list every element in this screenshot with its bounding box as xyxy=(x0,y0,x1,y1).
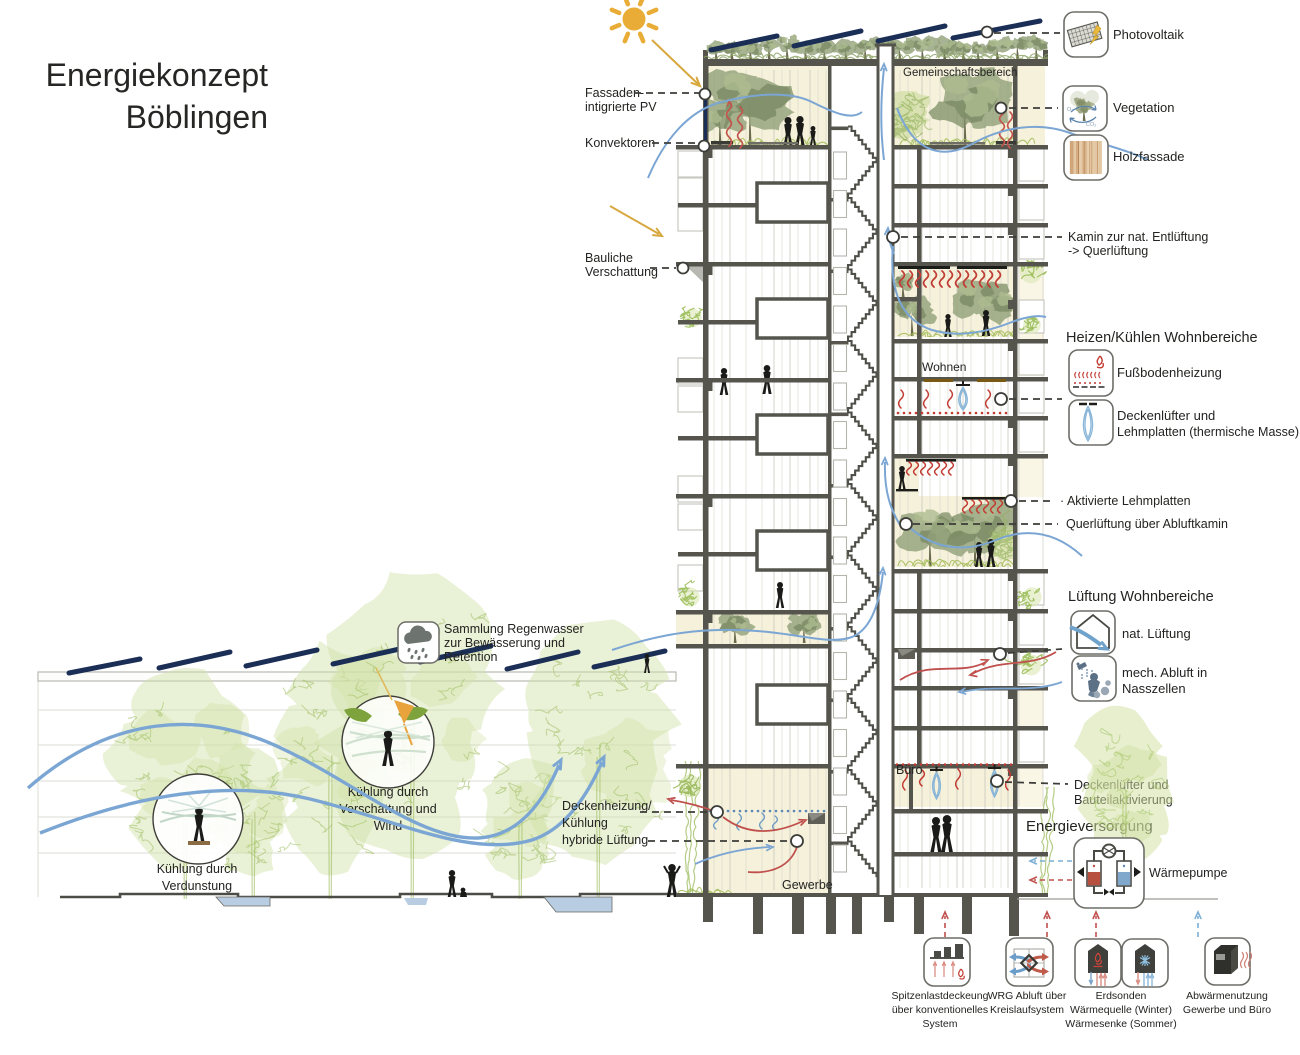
svg-text:Büro: Büro xyxy=(896,763,922,777)
svg-text:Retention: Retention xyxy=(444,650,498,664)
svg-text:Kamin zur nat. Entlüftung: Kamin zur nat. Entlüftung xyxy=(1068,230,1208,244)
svg-text:Kühlung: Kühlung xyxy=(562,816,608,830)
svg-text:hybride Lüftung: hybride Lüftung xyxy=(562,833,648,847)
svg-text:Sammlung Regenwasser: Sammlung Regenwasser xyxy=(444,622,584,636)
svg-text:Kühlung durch: Kühlung durch xyxy=(157,862,238,876)
svg-text:nat. Lüftung: nat. Lüftung xyxy=(1122,626,1191,641)
svg-text:zur Bewässerung und: zur Bewässerung und xyxy=(444,636,565,650)
svg-text:Spitzenlastdeckeung: Spitzenlastdeckeung xyxy=(892,990,989,1002)
svg-text:intigrierte PV: intigrierte PV xyxy=(585,100,657,114)
svg-text:Nasszellen: Nasszellen xyxy=(1122,681,1186,696)
svg-text:Holzfassade: Holzfassade xyxy=(1113,149,1185,164)
svg-text:Verdunstung: Verdunstung xyxy=(162,879,232,893)
svg-text:Böblingen: Böblingen xyxy=(126,99,268,135)
svg-text:Erdsonden: Erdsonden xyxy=(1096,990,1147,1002)
svg-text:Querlüftung über Abluftkamin: Querlüftung über Abluftkamin xyxy=(1066,517,1228,531)
svg-text:Photovoltaik: Photovoltaik xyxy=(1113,27,1184,42)
svg-text:Gewerbe und Büro: Gewerbe und Büro xyxy=(1183,1004,1271,1016)
svg-text:Gewerbe: Gewerbe xyxy=(782,878,833,892)
svg-text:Verschattung: Verschattung xyxy=(585,265,658,279)
svg-text:Wohnen: Wohnen xyxy=(922,360,966,374)
svg-text:Lehmplatten (thermische Masse): Lehmplatten (thermische Masse) xyxy=(1117,425,1299,439)
svg-text:Deckenheizung/: Deckenheizung/ xyxy=(562,799,652,813)
svg-text:Konvektoren: Konvektoren xyxy=(585,136,655,150)
svg-text:Wärmesenke (Sommer): Wärmesenke (Sommer) xyxy=(1065,1018,1176,1030)
svg-text:System: System xyxy=(922,1018,957,1030)
svg-text:O₂: O₂ xyxy=(1067,107,1073,113)
svg-text:über konventionelles: über konventionelles xyxy=(892,1004,988,1016)
svg-text:Deckenlüfter und: Deckenlüfter und xyxy=(1117,408,1215,423)
svg-text:Energiekonzept: Energiekonzept xyxy=(46,57,268,93)
svg-text:Wärmepumpe: Wärmepumpe xyxy=(1149,866,1228,880)
svg-text:Lüftung Wohnbereiche: Lüftung Wohnbereiche xyxy=(1068,589,1214,605)
svg-text:CO₂: CO₂ xyxy=(1086,122,1096,128)
svg-text:· Aktivierte Lehmplatten: · Aktivierte Lehmplatten xyxy=(1060,494,1191,508)
svg-text:Fußbodenheizung: Fußbodenheizung xyxy=(1117,365,1222,380)
svg-text:-> Querlüftung: -> Querlüftung xyxy=(1068,244,1148,258)
svg-text:mech. Abluft in: mech. Abluft in xyxy=(1122,665,1207,680)
svg-text:Abwärmenutzung: Abwärmenutzung xyxy=(1186,990,1268,1002)
svg-text:Vegetation: Vegetation xyxy=(1113,100,1174,115)
svg-text:WRG Abluft über: WRG Abluft über xyxy=(988,990,1067,1002)
svg-text:Heizen/Kühlen Wohnbereiche: Heizen/Kühlen Wohnbereiche xyxy=(1066,330,1258,346)
svg-text:Kreislaufsystem: Kreislaufsystem xyxy=(990,1004,1064,1016)
svg-text:Gemeinschaftsbereich: Gemeinschaftsbereich xyxy=(903,67,1017,79)
svg-text:Wärmequelle (Winter): Wärmequelle (Winter) xyxy=(1070,1004,1172,1016)
svg-text:Bauliche: Bauliche xyxy=(585,251,633,265)
